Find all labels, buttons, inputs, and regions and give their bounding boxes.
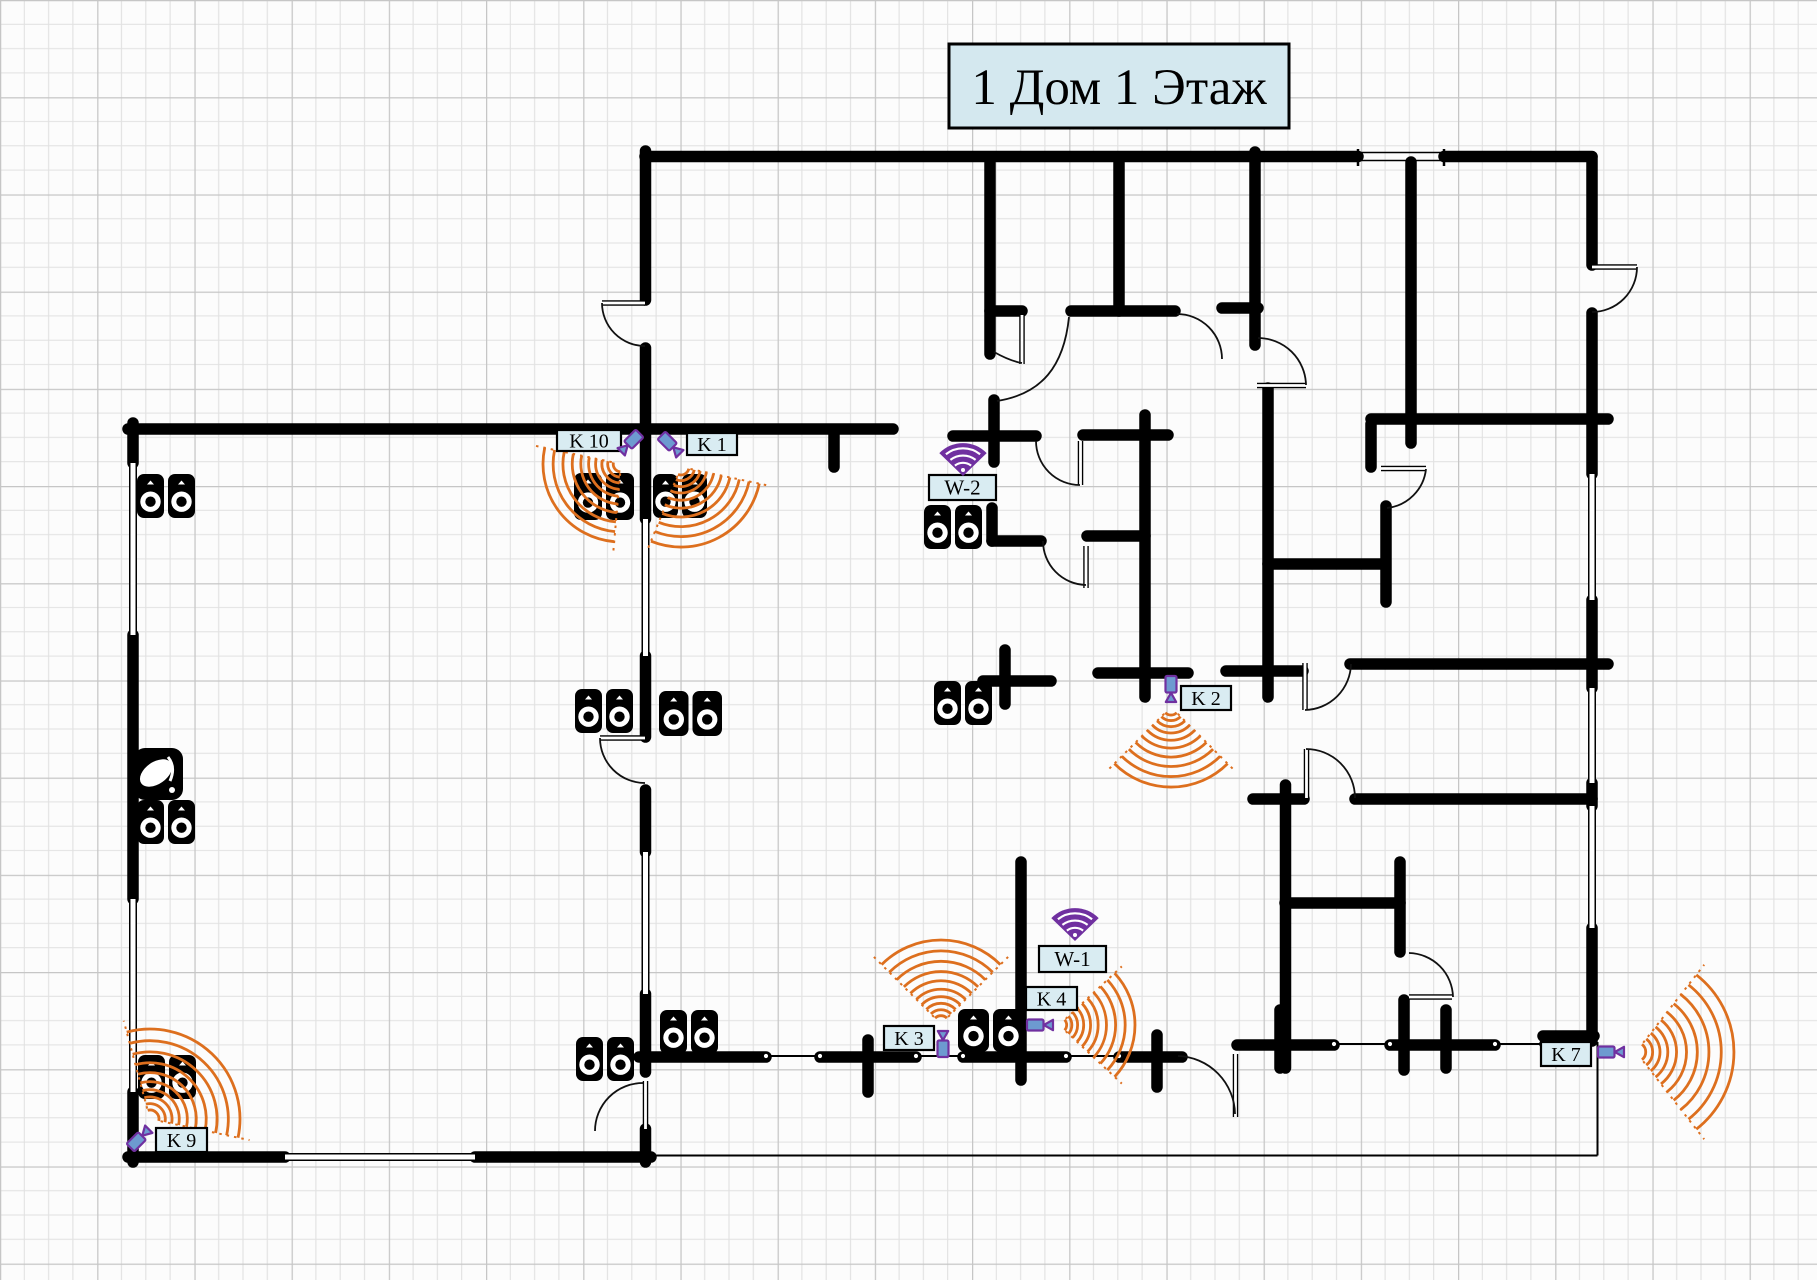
svg-text:W-2: W-2 xyxy=(944,476,980,500)
svg-text:K 2: K 2 xyxy=(1191,688,1220,710)
svg-text:K 3: K 3 xyxy=(894,1028,923,1050)
svg-text:W-1: W-1 xyxy=(1054,947,1090,971)
svg-text:K 4: K 4 xyxy=(1037,988,1066,1010)
svg-text:K 10: K 10 xyxy=(569,430,608,452)
svg-text:1 Дом 1 Этаж: 1 Дом 1 Этаж xyxy=(971,60,1267,116)
svg-text:K 1: K 1 xyxy=(697,434,726,456)
svg-text:K 9: K 9 xyxy=(167,1130,196,1152)
svg-text:K 7: K 7 xyxy=(1551,1044,1580,1066)
